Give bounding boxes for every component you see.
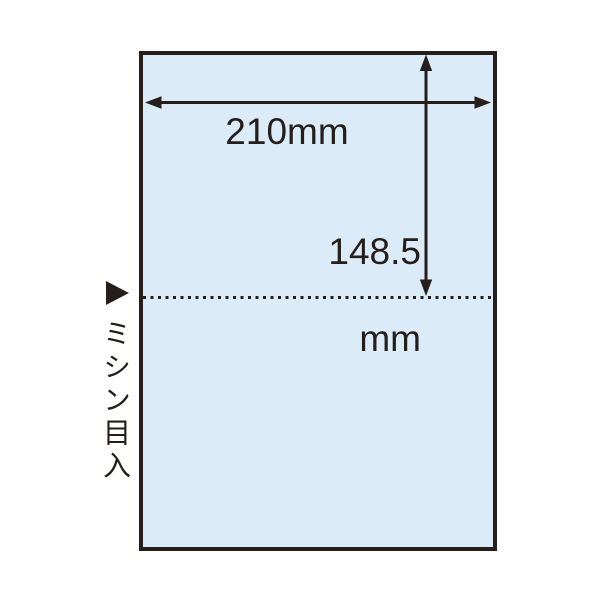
width-dimension-label: 210mm <box>225 117 348 146</box>
height-dimension-label: 148.5 mm <box>328 179 421 411</box>
product-spec-diagram: 210mm 148.5 mm ミシン目入 <box>0 0 600 600</box>
height-dimension-unit: mm <box>328 324 421 353</box>
perforation-label: ミシン目入 <box>100 319 130 484</box>
perforation-pointer-icon <box>106 281 129 305</box>
height-dimension-value: 148.5 <box>328 237 421 266</box>
